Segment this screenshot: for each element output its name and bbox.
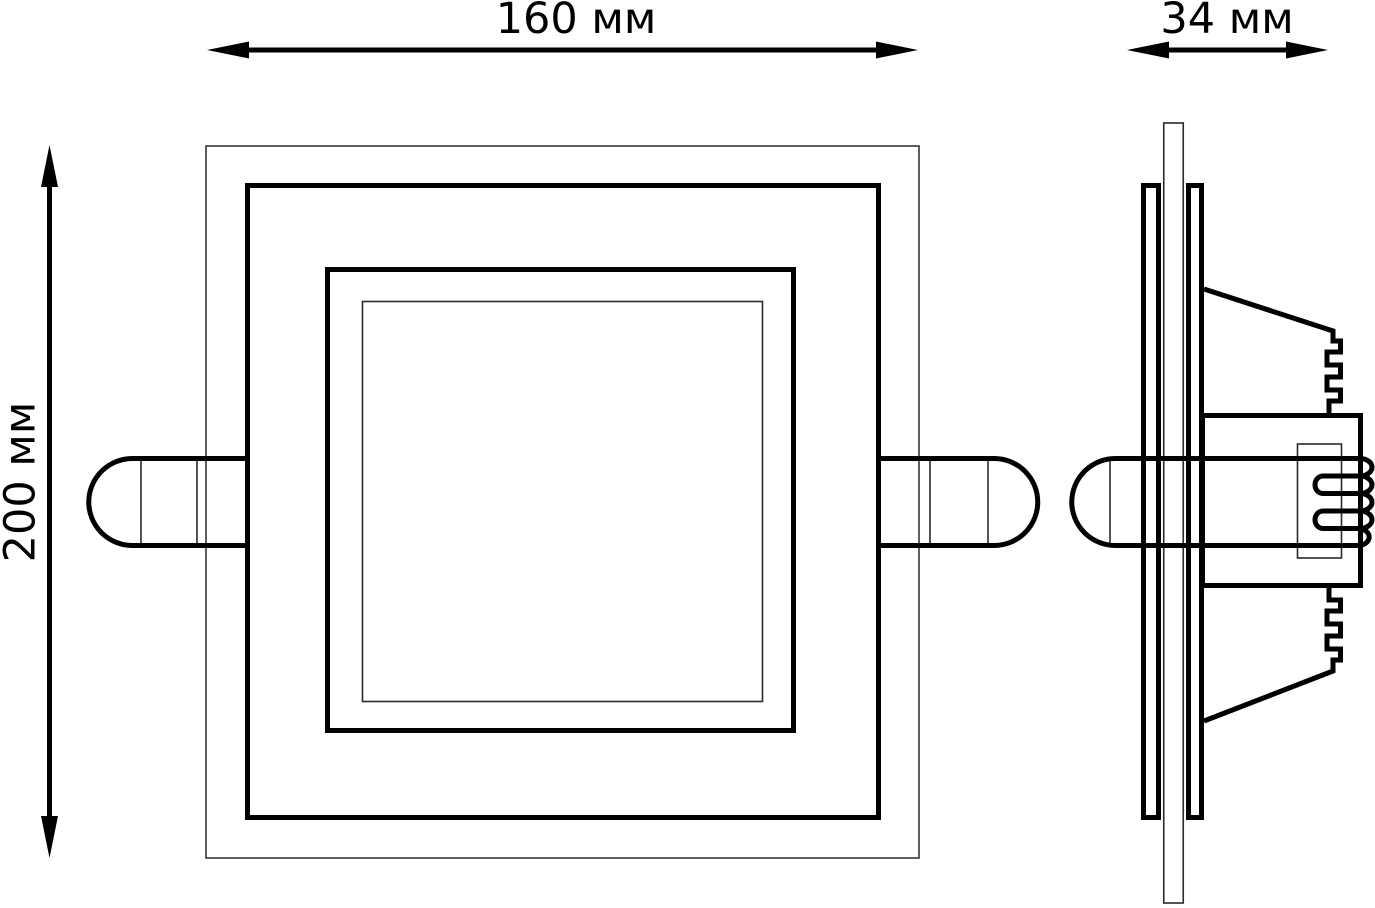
- side-glass-rect: [1144, 186, 1159, 818]
- front-right-clip: [876, 459, 1038, 546]
- side-driver-box-inner: [1298, 444, 1342, 558]
- side-driver-box: [1203, 416, 1361, 586]
- side-spring-clip: [1072, 459, 1372, 546]
- technical-drawing: [0, 0, 1375, 908]
- depth-dimension-label: 34 мм: [1160, 0, 1293, 41]
- width-dimension-label: 160 мм: [496, 0, 657, 41]
- front-outer-thin-square: [206, 146, 919, 858]
- front-aperture-square: [363, 302, 763, 702]
- depth-dimension-arrow: [1127, 42, 1328, 59]
- side-heatsink-top: [1204, 289, 1341, 413]
- side-view: [1072, 123, 1372, 903]
- front-left-clip: [89, 459, 250, 546]
- front-view: [89, 146, 1038, 858]
- side-frame-rect: [1189, 186, 1202, 818]
- side-heatsink-bottom: [1204, 588, 1341, 721]
- side-ceiling-strip: [1164, 123, 1184, 903]
- front-frame-square: [328, 270, 794, 731]
- front-glass-square: [248, 186, 879, 818]
- width-dimension-arrow: [207, 42, 918, 59]
- drawing-canvas: 160 мм 34 мм 200 мм: [0, 0, 1375, 908]
- height-dimension-label: 200 мм: [0, 402, 43, 563]
